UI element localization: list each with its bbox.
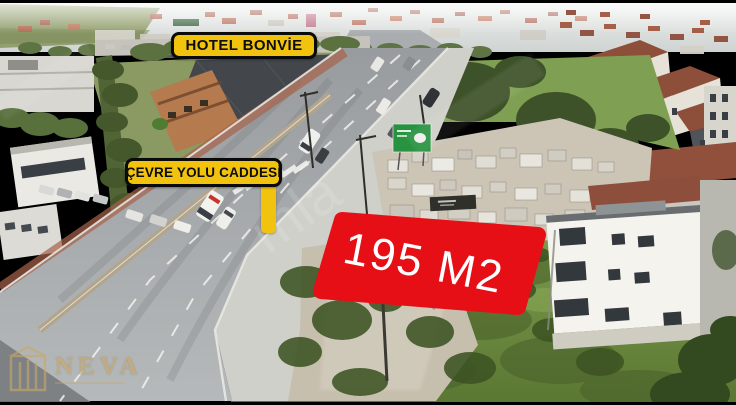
- area-plate: 195 M2: [321, 220, 538, 307]
- agency-logo-emblem: [8, 344, 48, 394]
- street-name-label: ÇEVRE YOLU CADDESİ: [125, 158, 282, 187]
- hotel-name-text: HOTEL BONVİE: [185, 37, 302, 54]
- yard-sign: [430, 195, 477, 211]
- agency-logo: NEVA: [8, 344, 143, 394]
- agency-logo-rule: [55, 382, 125, 384]
- real-estate-listing-photo: mla 195 M2 HOTEL BONVİE ÇEVRE YOLU CADDE…: [0, 0, 736, 405]
- agency-logo-text: NEVA: [55, 353, 143, 380]
- street-label-pointer: [261, 180, 276, 233]
- street-name-text: ÇEVRE YOLU CADDESİ: [126, 165, 282, 180]
- hotel-name-label: HOTEL BONVİE: [171, 32, 317, 59]
- letterbox-bar-top: [0, 0, 736, 3]
